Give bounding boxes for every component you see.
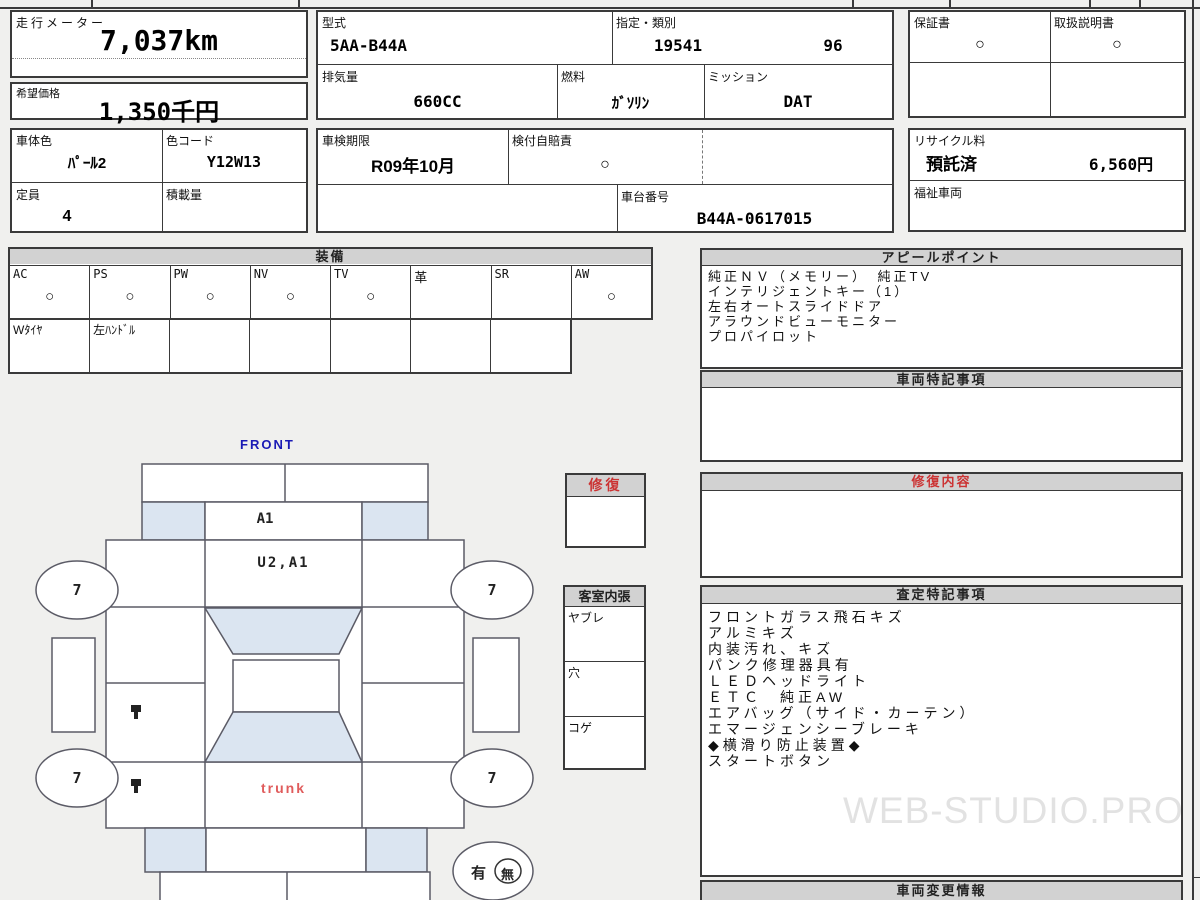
wheel-depth-mark: 7 [57,581,97,599]
wheel-depth-mark: 7 [472,581,512,599]
grid-divider [910,62,1184,63]
grid-divider [12,182,306,183]
assessment-title: 査定特記事項 [702,587,1181,604]
equipment-cell-ac: AC○ [10,266,90,318]
recycle-box: リサイクル料 預託済 6,560円 福祉車両 [908,128,1186,232]
watermark: WEB-STUDIO.PRO [843,790,1184,832]
equipment-label: 革 [414,267,427,286]
body-color-value: ﾊﾟｰﾙ2 [12,152,162,173]
front-right-corner-panel [362,502,428,540]
interior-row-label: コゲ [568,719,592,736]
vehicle-notes-title: 車両特記事項 [702,372,1181,388]
dashed-divider [702,130,703,184]
expiry-value: R09年10月 [318,152,508,177]
equipment-note-cell [250,320,330,372]
model-value: 5AA-B44A [330,36,407,55]
interior-row-label: 穴 [568,664,580,681]
equipment-cell-ps: PS○ [90,266,170,318]
warranty-label: 保証書 [914,14,950,31]
equipment-circle: ○ [90,288,169,305]
equipment-label: PW [174,267,188,281]
right-frame-line [1192,0,1194,900]
rear-right-corner-panel [366,828,427,872]
equipment-note-cell: Wﾀｲﾔ [10,320,90,372]
assessment-line: ＥＴＣ 純正AW [708,689,977,705]
rear-gate-panel [206,828,366,872]
equipment-note-cell [491,320,570,372]
insurance-label: 検付自賠責 [512,132,572,149]
interior-box: 客室内張 ヤブレ 穴 コゲ [563,585,646,770]
equipment-note: 左ﾊﾝﾄﾞﾙ [93,321,135,338]
trunk-label: trunk [205,780,362,796]
equipment-circle: ○ [572,288,651,305]
auction-sheet: 走行メーター 7,037km 希望価格 1,350千円 車体色 ﾊﾟｰﾙ2 色コ… [0,0,1200,900]
presence-yes-label: 有 [471,862,486,883]
equipment-cell-aw: AW○ [572,266,651,318]
inspection-box: 車検期限 R09年10月 検付自賠責 ○ 車台番号 B44A-0617015 [316,128,894,233]
repair-detail-box: 修復内容 [700,472,1183,578]
equipment-circle: ○ [251,288,330,305]
assessment-line: フロントガラス飛石キズ [708,609,977,625]
equipment-circle: ○ [331,288,410,305]
top-table-edge-line [0,7,1200,9]
equipment-row: AC○ PS○ PW○ NV○ TV○ 革 SR AW○ [8,266,653,320]
grid-divider [318,184,892,185]
color-code-label: 色コード [166,132,214,149]
repair-flag-box: 修復 [565,473,646,548]
equipment-cell-leather: 革 [411,266,491,318]
equipment-cell-tv: TV○ [331,266,411,318]
vehicle-notes-box: 車両特記事項 [700,370,1183,462]
equipment-label: NV [254,267,268,281]
assessment-box: 査定特記事項 フロントガラス飛石キズ アルミキズ 内装汚れ、キズ パンク修理器具… [700,585,1183,877]
recycle-status: 預託済 [926,150,977,175]
equipment-label: SR [495,267,509,281]
equipment-note-cell: 左ﾊﾝﾄﾞﾙ [90,320,170,372]
appeal-lines: 純正ＮＶ（メモリー） 純正TV インテリジェントキー（1） 左右オートスライドド… [708,269,932,344]
repair-detail-title: 修復内容 [702,474,1181,491]
presence-no-label: 無 [501,864,514,883]
fuel-value: ｶﾞｿﾘﾝ [557,92,704,113]
assessment-line: ◆横滑り防止装置◆ [708,737,977,753]
expiry-label: 車検期限 [322,132,370,149]
manual-circle: ○ [1050,36,1184,54]
class-label: 指定・類別 [616,14,676,31]
windshield-damage-mark: U2,A1 [205,555,362,571]
appeal-box: アピールポイント 純正ＮＶ（メモリー） 純正TV インテリジェントキー（1） 左… [700,248,1183,369]
change-info-box: 車両変更情報 [700,880,1183,900]
mission-label: ミッション [708,68,768,85]
assessment-line: スタートボタン [708,753,977,769]
table-edge-tick [852,0,854,8]
equipment-label: TV [334,267,348,281]
spec-box: 型式 5AA-B44A 指定・類別 19541 96 排気量 660CC 燃料 … [316,10,894,120]
dotted-divider [12,58,306,59]
model-label: 型式 [322,14,346,31]
chassis-value: B44A-0617015 [617,209,892,228]
wheel-depth-mark: 7 [57,769,97,787]
equipment-note: Wﾀｲﾔ [13,321,42,338]
recycle-fee: 6,560円 [1060,151,1182,175]
color-code-value: Y12W13 [162,153,306,171]
assessment-line: ＬＥＤヘッドライト [708,673,977,689]
grid-divider [612,12,613,64]
equipment-cell-sr: SR [492,266,572,318]
equipment-note-cell [331,320,411,372]
rear-roof-glass [205,712,362,762]
capacity-label: 定員 [16,186,40,203]
class-value-1: 19541 [618,36,738,55]
assessment-line: エアバッグ（サイド・カーテン） [708,705,977,721]
grid-divider [1050,12,1051,116]
equipment-note-cell [170,320,250,372]
interior-title: 客室内張 [565,587,644,607]
equipment-cell-pw: PW○ [171,266,251,318]
body-color-label: 車体色 [16,132,52,149]
table-edge-tick [949,0,951,8]
table-edge-tick [91,0,93,8]
hood-damage-mark: A1 [205,511,325,527]
capacity-value: 4 [12,208,122,226]
equipment-note-cell [411,320,491,372]
car-diagram [0,430,560,900]
equipment-header: 装備 [8,247,653,266]
equipment-label: PS [93,267,107,281]
equipment-title: 装備 [10,249,651,264]
equipment-circle: ○ [171,288,250,305]
equipment-circle: ○ [10,288,89,305]
price-box: 希望価格 1,350千円 [10,82,308,120]
appeal-line: プロパイロット [708,329,932,344]
grid-divider [318,64,892,65]
table-edge-tick [298,0,300,8]
warranty-circle: ○ [910,36,1050,54]
mission-value: DAT [704,92,892,111]
appeal-line: インテリジェントキー（1） [708,284,932,299]
front-left-corner-panel [142,502,205,540]
rear-left-corner-panel [145,828,206,872]
appeal-title: アピールポイント [702,250,1181,266]
docs-box: 保証書 ○ 取扱説明書 ○ [908,10,1186,118]
assessment-line: エマージェンシーブレーキ [708,721,977,737]
equipment-label: AW [575,267,589,281]
roof-panel [233,660,339,712]
class-value-2: 96 [788,36,878,55]
appeal-line: 左右オートスライドドア [708,299,932,314]
chassis-label: 車台番号 [621,188,669,205]
insurance-circle: ○ [508,156,702,174]
appeal-line: 純正ＮＶ（メモリー） 純正TV [708,269,932,284]
interior-row-tear: ヤブレ [565,607,644,662]
right-frame-divider [1192,877,1200,878]
odometer-value: 7,037km [12,24,306,57]
body-color-grid: 車体色 ﾊﾟｰﾙ2 色コード Y12W13 定員 4 積載量 [10,128,308,233]
table-edge-tick [1089,0,1091,8]
displacement-value: 660CC [318,92,557,111]
assessment-lines: フロントガラス飛石キズ アルミキズ 内装汚れ、キズ パンク修理器具有 ＬＥＤヘッ… [708,609,977,769]
equipment-label: AC [13,267,27,281]
front-direction-label: FRONT [240,437,295,452]
assessment-line: 内装汚れ、キズ [708,641,977,657]
left-step-panel [52,638,95,732]
front-roof-glass [205,608,362,654]
odometer-box: 走行メーター 7,037km [10,10,308,78]
load-label: 積載量 [166,186,202,203]
table-edge-tick [1139,0,1141,8]
equipment-notes-row: Wﾀｲﾔ 左ﾊﾝﾄﾞﾙ [8,320,572,374]
grid-divider [910,180,1184,181]
fuel-label: 燃料 [561,68,585,85]
assessment-line: パンク修理器具有 [708,657,977,673]
displacement-label: 排気量 [322,68,358,85]
appeal-line: アラウンドビューモニター [708,314,932,329]
welfare-label: 福祉車両 [914,184,962,201]
manual-label: 取扱説明書 [1054,14,1114,31]
right-step-panel [473,638,519,732]
repair-flag-title: 修復 [567,475,644,497]
recycle-label: リサイクル料 [914,132,985,149]
change-info-title: 車両変更情報 [702,882,1181,900]
equipment-cell-nv: NV○ [251,266,331,318]
grid-divider [162,130,163,231]
wheel-depth-mark: 7 [472,769,512,787]
price-value: 1,350千円 [12,92,306,127]
interior-row-label: ヤブレ [568,609,604,626]
rear-bumper [160,872,430,900]
interior-row-burn: コゲ [565,717,644,768]
assessment-line: アルミキズ [708,625,977,641]
interior-row-hole: 穴 [565,662,644,717]
